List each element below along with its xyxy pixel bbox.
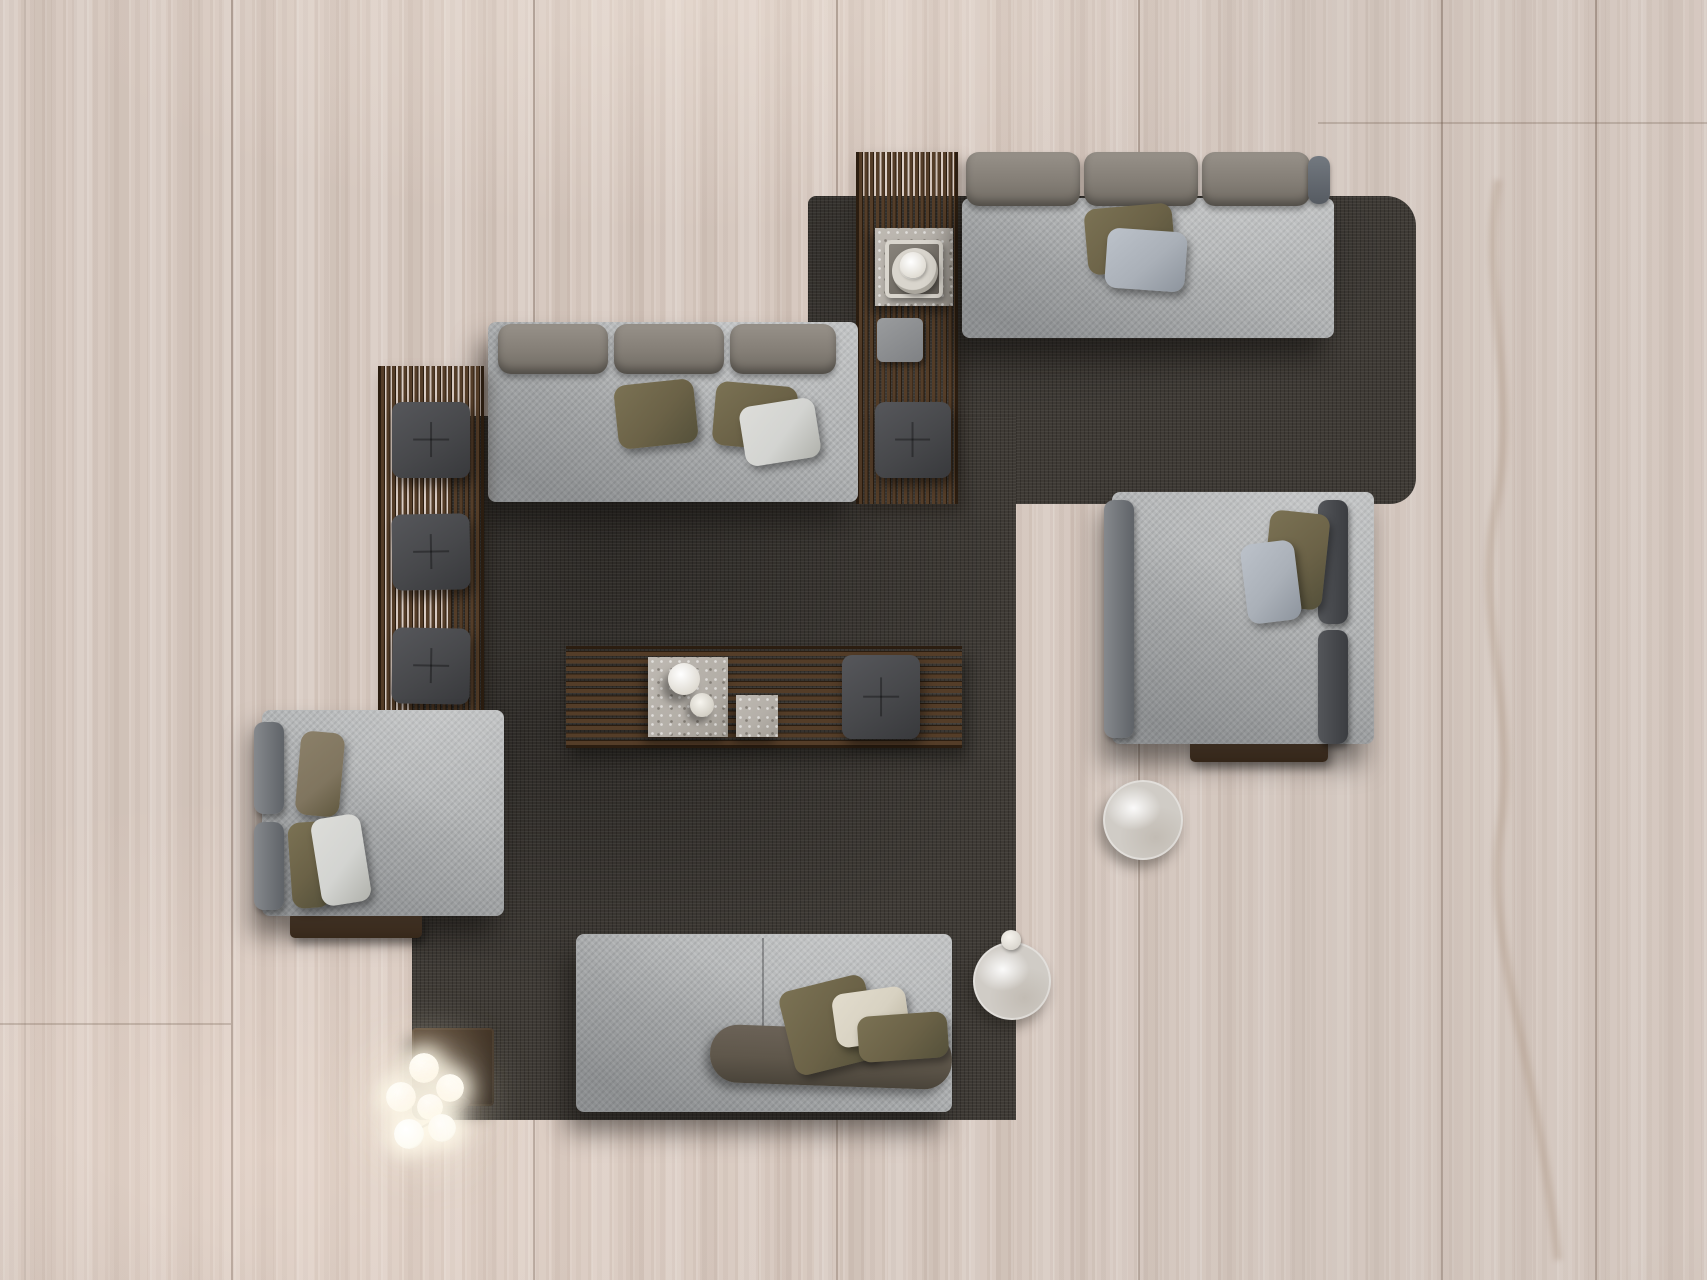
lighting-vignette xyxy=(0,0,1707,1280)
living-room-top-view xyxy=(0,0,1707,1280)
